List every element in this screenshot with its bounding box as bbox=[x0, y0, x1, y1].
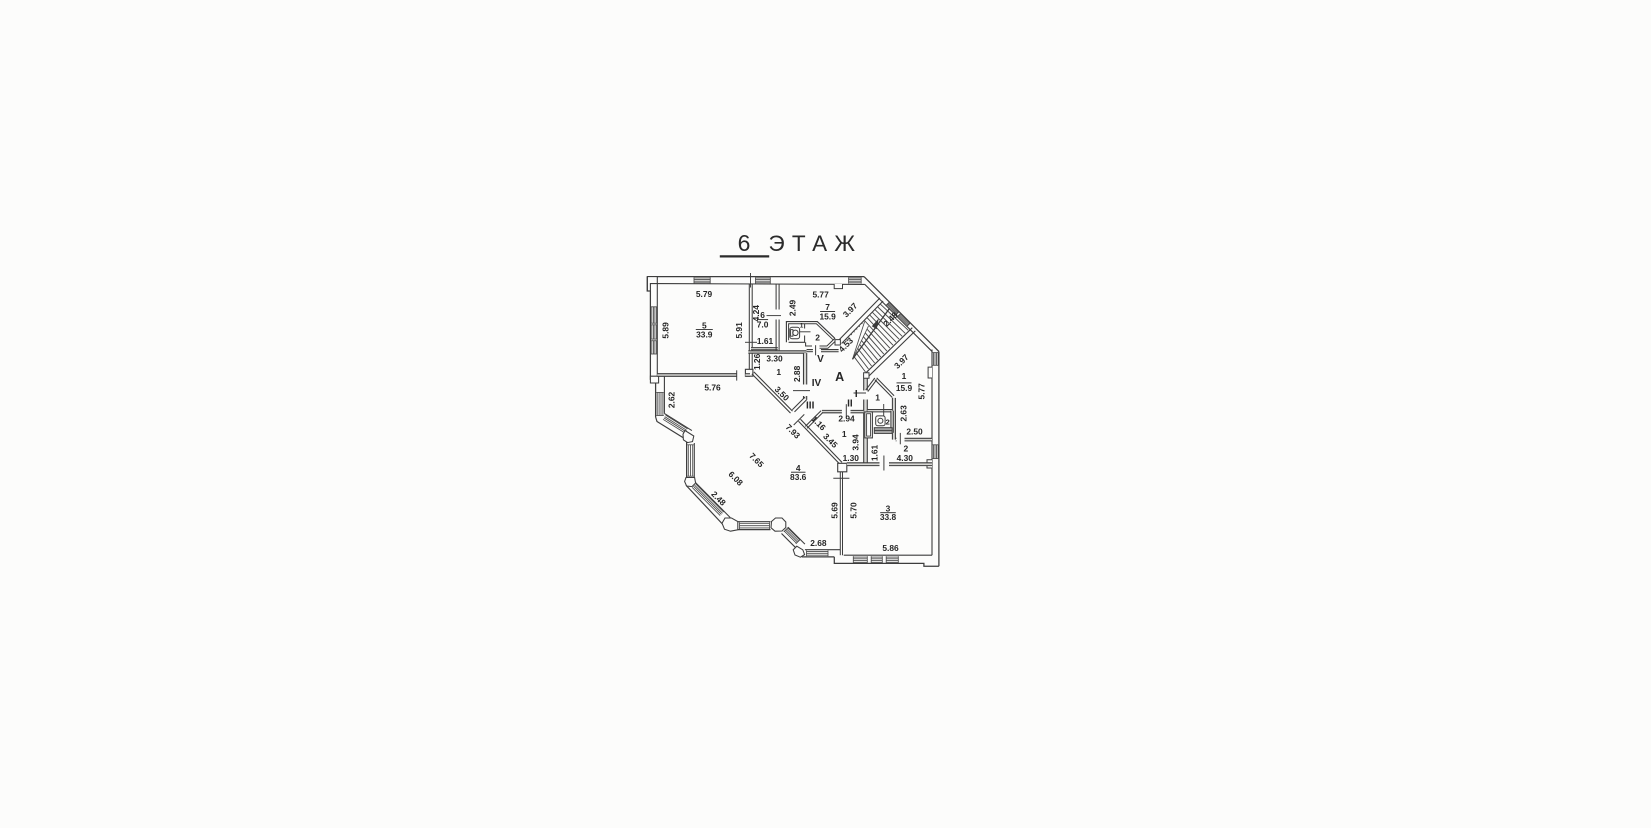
svg-text:7.0: 7.0 bbox=[757, 319, 769, 329]
svg-text:5.69: 5.69 bbox=[830, 502, 840, 519]
svg-text:2.88: 2.88 bbox=[792, 365, 802, 382]
svg-text:2.62: 2.62 bbox=[666, 392, 676, 409]
svg-text:15.9: 15.9 bbox=[896, 383, 913, 393]
svg-text:I: I bbox=[855, 389, 858, 400]
svg-text:5.86: 5.86 bbox=[882, 543, 899, 553]
svg-text:5.91: 5.91 bbox=[734, 322, 744, 339]
svg-text:1.61: 1.61 bbox=[757, 336, 774, 346]
svg-text:5.89: 5.89 bbox=[661, 322, 671, 339]
svg-text:1: 1 bbox=[875, 392, 880, 402]
svg-text:33.8: 33.8 bbox=[880, 512, 897, 522]
svg-text:5.79: 5.79 bbox=[696, 289, 713, 299]
svg-text:2: 2 bbox=[886, 417, 890, 426]
svg-text:1.61: 1.61 bbox=[870, 445, 880, 462]
svg-text:II: II bbox=[847, 399, 853, 410]
svg-text:5.70: 5.70 bbox=[849, 502, 859, 519]
svg-text:1: 1 bbox=[776, 367, 781, 377]
svg-text:1.30: 1.30 bbox=[843, 453, 860, 463]
svg-text:А: А bbox=[835, 370, 844, 384]
svg-text:2: 2 bbox=[904, 444, 909, 454]
svg-text:2.50: 2.50 bbox=[906, 427, 923, 437]
svg-text:V: V bbox=[817, 354, 824, 365]
svg-text:5.76: 5.76 bbox=[704, 382, 721, 392]
svg-text:2.68: 2.68 bbox=[810, 538, 827, 548]
svg-text:III: III bbox=[806, 401, 815, 412]
svg-text:2.49: 2.49 bbox=[788, 300, 798, 317]
svg-text:IV: IV bbox=[812, 378, 822, 389]
svg-text:3.94: 3.94 bbox=[850, 434, 860, 451]
svg-text:5.77: 5.77 bbox=[812, 290, 829, 300]
svg-text:1.26: 1.26 bbox=[752, 353, 762, 370]
svg-text:83.6: 83.6 bbox=[790, 472, 807, 482]
svg-text:2.94: 2.94 bbox=[838, 414, 855, 424]
svg-text:33.9: 33.9 bbox=[696, 330, 713, 340]
svg-text:5.77: 5.77 bbox=[917, 383, 927, 400]
svg-text:6: 6 bbox=[738, 230, 751, 256]
svg-text:15.9: 15.9 bbox=[819, 311, 836, 321]
svg-text:1: 1 bbox=[842, 429, 847, 439]
svg-text:1: 1 bbox=[800, 323, 804, 330]
svg-text:2.63: 2.63 bbox=[898, 405, 908, 422]
svg-text:3.30: 3.30 bbox=[766, 354, 783, 364]
svg-text:ЭТАЖ: ЭТАЖ bbox=[769, 231, 863, 256]
svg-text:1: 1 bbox=[902, 371, 907, 381]
svg-text:4.30: 4.30 bbox=[897, 453, 914, 463]
svg-text:2: 2 bbox=[815, 333, 820, 343]
